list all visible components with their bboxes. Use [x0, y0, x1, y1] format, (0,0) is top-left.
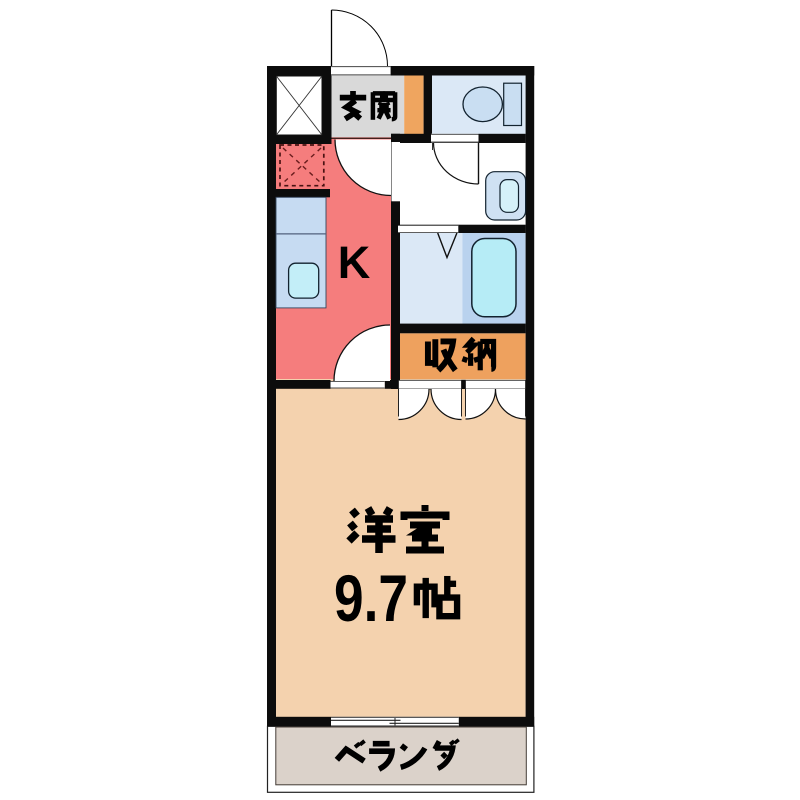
- svg-text:K: K: [338, 237, 371, 288]
- svg-text:9.7: 9.7: [334, 561, 408, 635]
